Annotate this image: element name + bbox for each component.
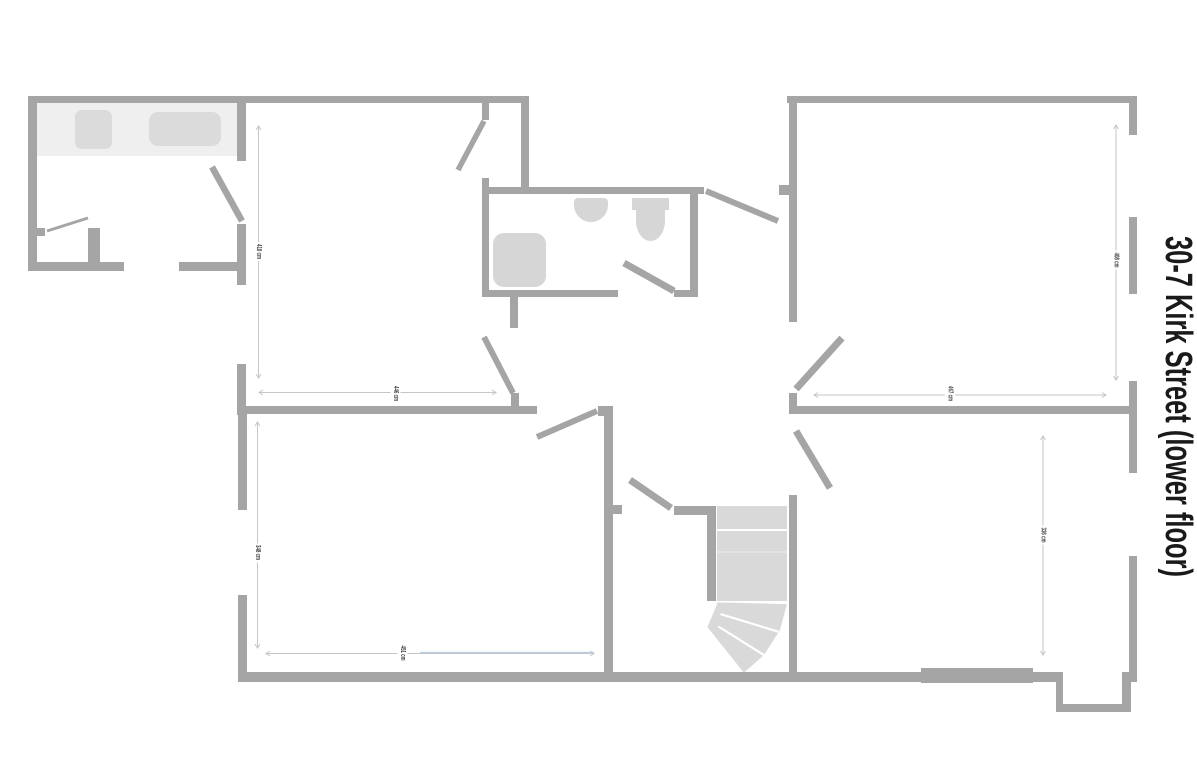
svg-text:410 cm: 410 cm <box>255 244 262 259</box>
svg-text:30-7 Kirk Street (lower floor): 30-7 Kirk Street (lower floor) <box>1157 236 1197 577</box>
svg-text:348 cm: 348 cm <box>254 545 261 560</box>
svg-text:451 cm: 451 cm <box>399 646 406 661</box>
svg-text:336 cm: 336 cm <box>1039 528 1046 543</box>
svg-text:408 cm: 408 cm <box>1112 253 1119 268</box>
svg-text:467 cm: 467 cm <box>946 386 953 401</box>
svg-text:446 cm: 446 cm <box>392 386 399 401</box>
